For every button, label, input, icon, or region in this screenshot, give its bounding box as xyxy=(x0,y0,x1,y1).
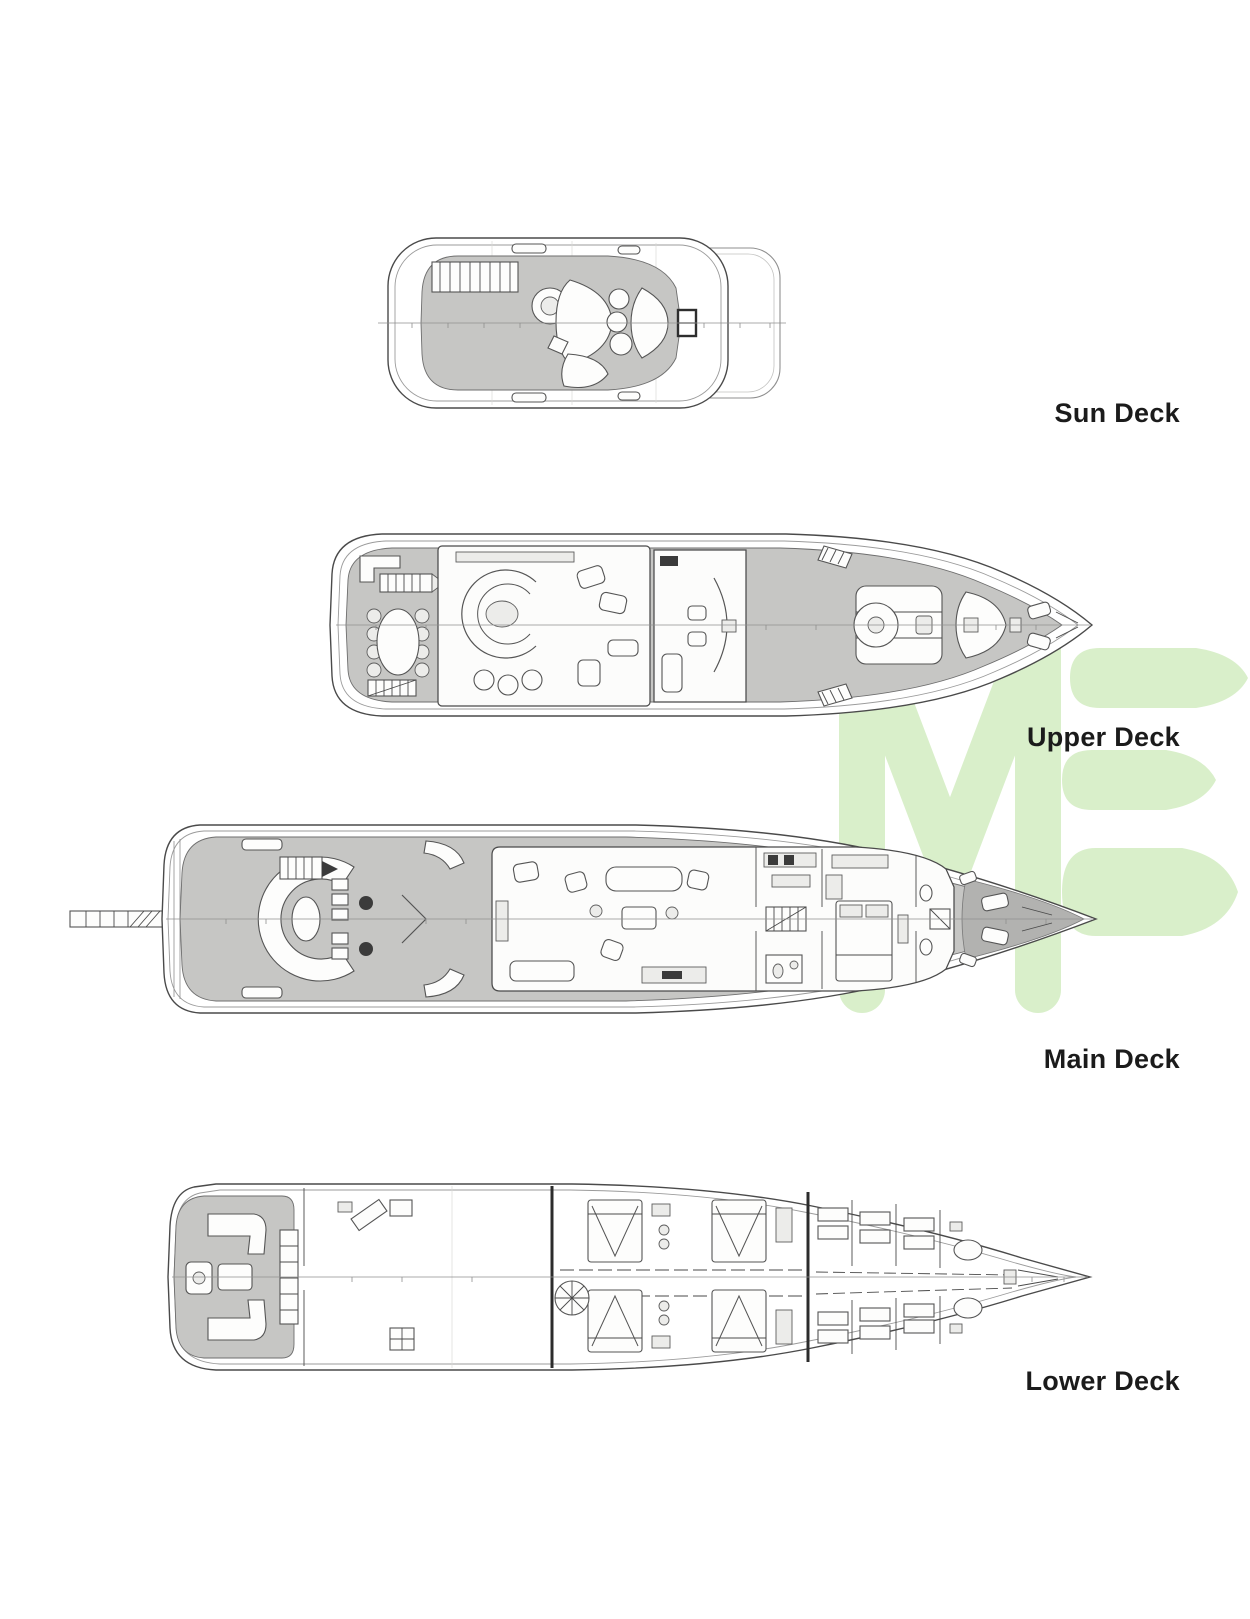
main-deck-plan xyxy=(66,815,1100,1023)
upper-skylounge xyxy=(438,546,650,706)
sun-deck-plan xyxy=(372,232,792,414)
lower-deck-plan xyxy=(152,1178,1100,1374)
upper-deck-plan xyxy=(316,528,1096,724)
deck-label-lower-deck: Lower Deck xyxy=(1025,1366,1180,1397)
deck-label-sun-deck: Sun Deck xyxy=(1055,398,1180,429)
deck-label-main-deck: Main Deck xyxy=(1044,1044,1180,1075)
yacht-deckplan-page: Sun Deck Upper Deck Main Deck Lower Deck xyxy=(0,0,1250,1619)
sun-deck-loungers xyxy=(432,262,518,292)
upper-pilothouse xyxy=(654,550,746,702)
deck-label-upper-deck: Upper Deck xyxy=(1027,722,1180,753)
